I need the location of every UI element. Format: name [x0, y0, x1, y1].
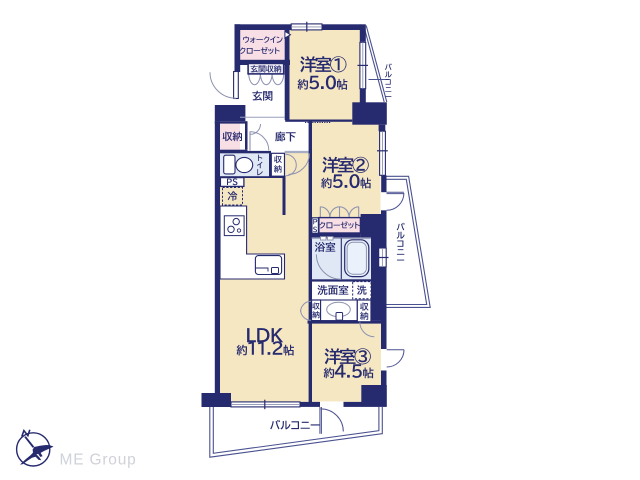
svg-text:ME Group: ME Group	[60, 451, 137, 468]
